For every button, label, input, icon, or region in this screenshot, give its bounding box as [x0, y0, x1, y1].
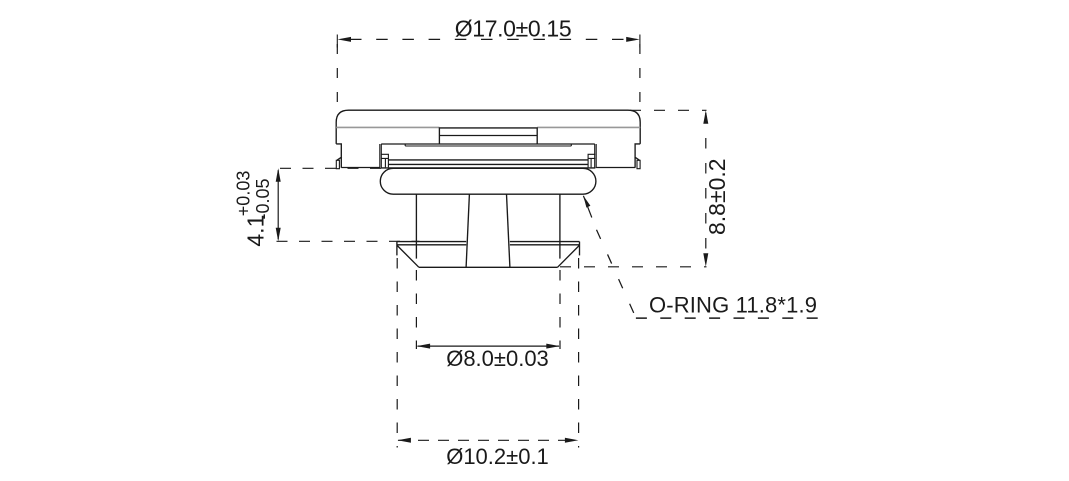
- svg-text:+0.03: +0.03: [233, 171, 253, 217]
- svg-text:8.8±0.2: 8.8±0.2: [704, 158, 730, 235]
- svg-text:Ø10.2±0.1: Ø10.2±0.1: [446, 444, 549, 469]
- svg-text:O-RING 11.8*1.9: O-RING 11.8*1.9: [649, 293, 817, 318]
- svg-text:-0.05: -0.05: [253, 178, 273, 219]
- svg-text:Ø8.0±0.03: Ø8.0±0.03: [446, 346, 549, 371]
- svg-text:Ø17.0±0.15: Ø17.0±0.15: [455, 15, 572, 41]
